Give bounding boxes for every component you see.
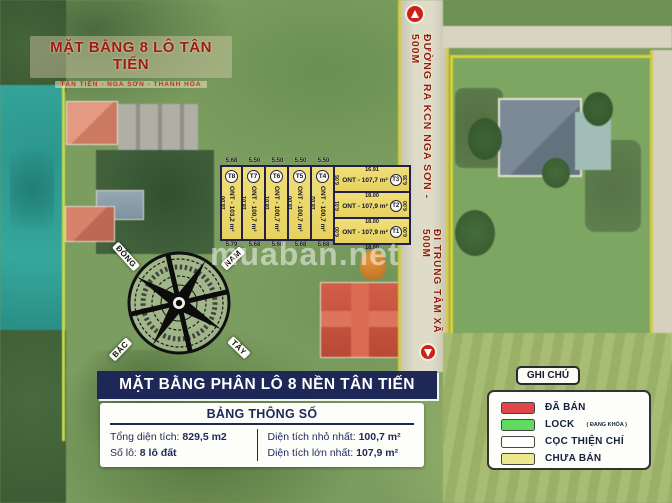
house-roof	[67, 102, 117, 144]
legend-item-lock: LOCK ( ĐANG KHÓA )	[501, 416, 649, 433]
lot-area: ONT - 107,9 m²	[342, 203, 388, 210]
lot-id-badge: T7	[247, 170, 260, 183]
grey-roof-house	[500, 100, 580, 175]
north-arrow-icon	[405, 4, 425, 24]
dim-top: 5.68	[220, 157, 243, 165]
dim-top: 18.00	[335, 219, 409, 226]
lot-T2: 18.00 6.01 ONT - 107,9 m² T2 6.00	[333, 191, 411, 219]
spec-row: Tổng diện tích: 829,5 m2	[110, 429, 257, 445]
legend-swatch-red	[501, 402, 535, 414]
dim-side: 18.02	[311, 196, 317, 210]
footer-title-banner: MẶT BẰNG PHÂN LÔ 8 NỀN TÂN TIẾN	[97, 371, 437, 399]
lot-area: ONT - 100,7 m²	[296, 184, 303, 234]
dim-side: 18.00	[288, 196, 294, 210]
right-road	[650, 50, 672, 362]
banner-title: MẶT BẰNG 8 LÔ TÂN TIẾN	[30, 39, 232, 73]
path	[443, 26, 672, 48]
dim-top: 18.00	[335, 193, 409, 200]
dim-top: 5.50	[312, 157, 335, 165]
title-banner: MẶT BẰNG 8 LÔ TÂN TIẾN TÂN TIẾN - NGA SƠ…	[30, 36, 232, 78]
spec-col-left: Tổng diện tích: 829,5 m2 Số lô: 8 lô đất	[110, 429, 257, 461]
watermark: muaban.net	[210, 236, 400, 273]
tree	[455, 210, 495, 256]
dim-top: 16.91	[335, 167, 409, 174]
lot-T3: 16.91 6.05 ONT - 107,7 m² T3 6.35	[333, 165, 411, 193]
lot-area: ONT - 100,7 m²	[250, 184, 257, 234]
tree	[468, 118, 502, 160]
south-arrow-icon	[419, 343, 437, 361]
spec-title: BẢNG THÔNG SỐ	[110, 407, 414, 421]
house-roof	[66, 207, 114, 241]
listing-image: MẶT BẰNG 8 LÔ TÂN TIẾN TÂN TIẾN - NGA SƠ…	[0, 0, 672, 503]
spec-row: Diện tích lớn nhất: 107,9 m²	[268, 445, 415, 461]
lot-id-badge: T6	[270, 170, 283, 183]
pond-shade	[10, 150, 54, 230]
field	[443, 0, 672, 26]
divider	[110, 423, 414, 425]
banner-subtitle: TÂN TIẾN - NGA SƠN - THANH HÓA	[55, 81, 206, 88]
lot-area: ONT - 103,2 m²	[228, 184, 235, 234]
dim-left: 6.05	[335, 175, 341, 185]
dim-side: 18.01	[265, 196, 271, 210]
dim-top: 5.50	[243, 157, 266, 165]
legend-swatch-white	[501, 436, 535, 448]
legend-item-deposit: CỌC THIỆN CHÍ	[501, 433, 649, 450]
dim-right: 6.35	[403, 175, 409, 185]
dim-top: 5.50	[289, 157, 312, 165]
legend: ĐÃ BÁN LOCK ( ĐANG KHÓA ) CỌC THIỆN CHÍ …	[487, 390, 651, 470]
lot-area: ONT - 100,7 m²	[319, 184, 326, 234]
lot-id-badge: T2	[390, 200, 402, 212]
legend-title: GHI CHÚ	[516, 366, 580, 385]
lot-id-badge: T5	[293, 170, 306, 183]
dim-top: 5.50	[266, 157, 289, 165]
tree-area	[0, 330, 66, 503]
spec-col-right: Diện tích nhỏ nhất: 100,7 m² Diện tích l…	[257, 429, 415, 461]
lot-id-badge: T4	[316, 170, 329, 183]
legend-swatch-yellow	[501, 453, 535, 465]
lot-id-badge: T3	[390, 174, 402, 186]
road-label-top: ĐƯỜNG RA KCN NGA SƠN - 500M	[409, 34, 433, 230]
dim-right: 6.00	[403, 227, 409, 237]
lot-area: ONT - 107,7 m²	[342, 177, 388, 184]
dim-left: 6.01	[335, 201, 341, 211]
legend-swatch-green	[501, 419, 535, 431]
lot-area: ONT - 107,9 m²	[342, 229, 388, 236]
spec-table: BẢNG THÔNG SỐ Tổng diện tích: 829,5 m2 S…	[100, 403, 424, 467]
red-roof-building	[321, 283, 401, 357]
dim-side: 18.00	[221, 196, 227, 210]
legend-item-sold: ĐÃ BÁN	[501, 399, 649, 416]
legend-item-available: CHƯA BÁN	[501, 450, 649, 467]
lot-area: ONT - 100,7 m²	[273, 184, 280, 234]
dim-right: 6.00	[403, 201, 409, 211]
lot-id-badge: T8	[225, 170, 238, 183]
dim-side: 18.01	[242, 196, 248, 210]
road-label-bottom: ĐI TRUNG TÂM XÃ 500M	[420, 229, 442, 351]
shed-roofs	[118, 104, 198, 154]
spec-row: Diện tích nhỏ nhất: 100,7 m²	[268, 429, 415, 445]
tree	[542, 158, 570, 188]
spec-row: Số lô: 8 lô đất	[110, 445, 257, 461]
tree	[583, 92, 613, 126]
